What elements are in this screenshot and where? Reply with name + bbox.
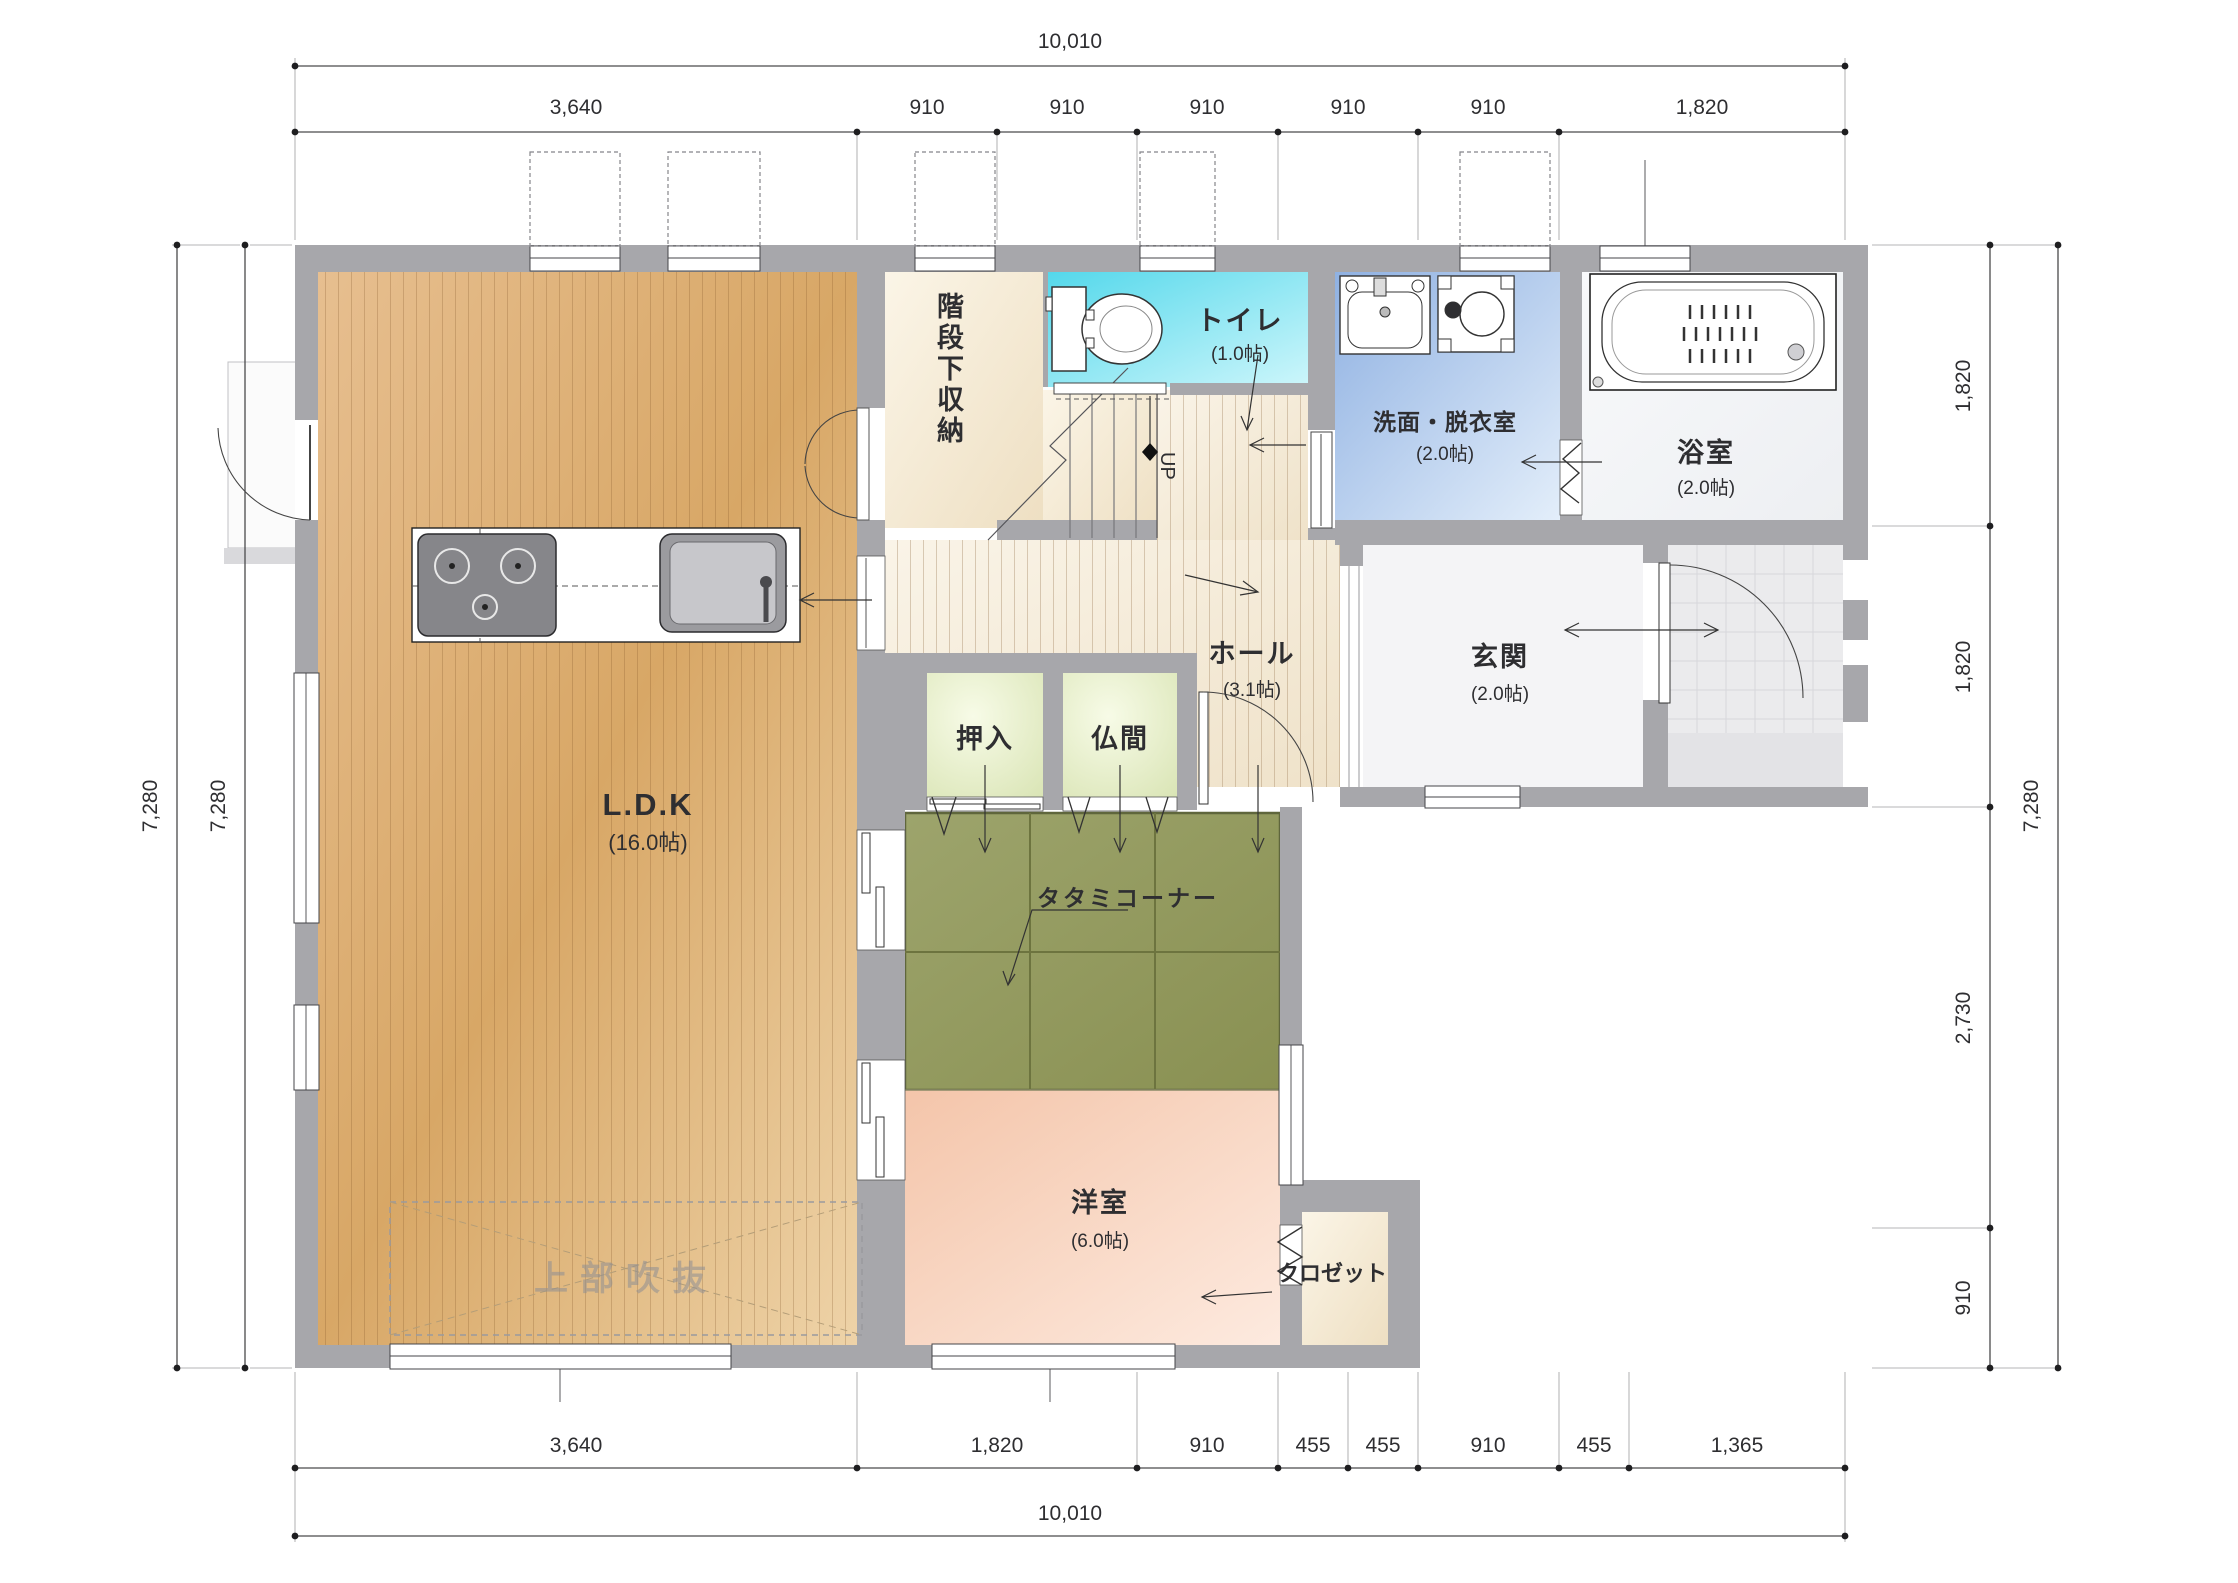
window-top-ldk-2 — [668, 246, 760, 271]
bath-label: 浴室 — [1677, 437, 1735, 468]
stove-icon — [418, 534, 556, 636]
up-label: UP — [1156, 452, 1178, 480]
dim-bottom-seg-7: 1,365 — [1711, 1434, 1764, 1457]
hall-size: (3.1帖) — [1223, 679, 1281, 701]
dim-top-seg-4: 910 — [1330, 96, 1365, 119]
western-room-label: 洋室 — [1071, 1187, 1129, 1218]
back-entry-alcove — [224, 362, 296, 564]
entrance-door-leaf — [1659, 563, 1670, 703]
upper-area-note: 上部吹抜 — [534, 1260, 718, 1298]
window-top-ldk-1 — [530, 246, 620, 271]
dim-top-seg-6: 1,820 — [1676, 96, 1729, 119]
washroom-size: (2.0帖) — [1416, 443, 1474, 465]
washing-machine-icon — [1438, 276, 1514, 352]
dim-left-outer: 7,280 — [139, 780, 162, 833]
dim-top-seg-1: 910 — [909, 96, 944, 119]
tatami-mats — [905, 813, 1280, 1090]
stairs-floor — [1043, 390, 1157, 538]
dim-bottom-seg-2: 910 — [1189, 1434, 1224, 1457]
kitchen-counter — [412, 528, 800, 642]
ldk-label: L.D.K — [603, 787, 694, 822]
ldk-hall-opening — [857, 556, 885, 650]
hall-label: ホール — [1209, 639, 1296, 669]
western-room-size: (6.0帖) — [1071, 1230, 1129, 1252]
window-top-storage — [915, 246, 995, 271]
dim-top-seg-0: 3,640 — [550, 96, 603, 119]
ldk-western-sliding-door — [857, 1060, 905, 1180]
stair-storage-floor — [885, 272, 1043, 528]
oshiire-label: 押入 — [956, 724, 1014, 754]
bathtub-icon — [1590, 274, 1836, 390]
dim-bottom-total: 10,010 — [1038, 1502, 1102, 1525]
closet-label: クロゼット — [1277, 1261, 1387, 1286]
ldk-tatami-sliding-door — [857, 830, 905, 950]
washroom-label: 洗面・脱衣室 — [1373, 409, 1517, 435]
dim-bottom-seg-0: 3,640 — [550, 1434, 603, 1457]
window-bottom-ldk — [390, 1344, 731, 1369]
ldk-size: (16.0帖) — [608, 830, 687, 855]
butsuma-label: 仏間 — [1091, 724, 1149, 754]
dim-right-total: 7,280 — [2020, 780, 2043, 833]
tatami-label: タタミコーナー — [1037, 885, 1219, 911]
dim-top-seg-2: 910 — [1049, 96, 1084, 119]
window-top-washroom — [1460, 246, 1550, 271]
toilet-size: (1.0帖) — [1211, 343, 1269, 365]
dim-bottom-seg-3: 455 — [1295, 1434, 1330, 1457]
sink-icon — [660, 534, 786, 632]
window-bottom-western — [932, 1344, 1175, 1369]
window-left-1 — [294, 673, 319, 923]
dim-top-seg-5: 910 — [1470, 96, 1505, 119]
floor-plan-page: UP — [0, 0, 2238, 1583]
dim-bottom-seg-1: 1,820 — [971, 1434, 1024, 1457]
toilet-icon — [1046, 287, 1162, 371]
dim-top-total: 10,010 — [1038, 30, 1102, 53]
bath-size: (2.0帖) — [1677, 477, 1735, 499]
dim-top-seg-3: 910 — [1189, 96, 1224, 119]
dim-left-inner: 7,280 — [207, 780, 230, 833]
tatami-door-leaf — [1199, 692, 1208, 804]
window-left-2 — [294, 1005, 319, 1090]
stair-storage-label: 階段下収納 — [933, 292, 964, 447]
window-top-bath — [1600, 246, 1690, 271]
entrance-size: (2.0帖) — [1471, 683, 1529, 705]
dim-right-seg-0: 1,820 — [1952, 360, 1975, 413]
dim-bottom-seg-4: 455 — [1365, 1434, 1400, 1457]
window-projection-boxes — [530, 152, 1550, 246]
dim-bottom-seg-5: 910 — [1470, 1434, 1505, 1457]
window-top-toilet — [1140, 246, 1215, 271]
floor-plan-drawing: UP — [0, 0, 2238, 1583]
toilet-door — [1054, 383, 1166, 394]
toilet-label: トイレ — [1197, 306, 1284, 336]
washbasin-icon — [1340, 276, 1430, 354]
dim-right-seg-3: 910 — [1952, 1280, 1975, 1315]
entrance-label: 玄関 — [1471, 641, 1529, 672]
dim-right-seg-1: 1,820 — [1952, 641, 1975, 694]
dim-bottom-seg-6: 455 — [1576, 1434, 1611, 1457]
porch-tile — [1668, 545, 1843, 787]
dim-right-seg-2: 2,730 — [1952, 992, 1975, 1045]
